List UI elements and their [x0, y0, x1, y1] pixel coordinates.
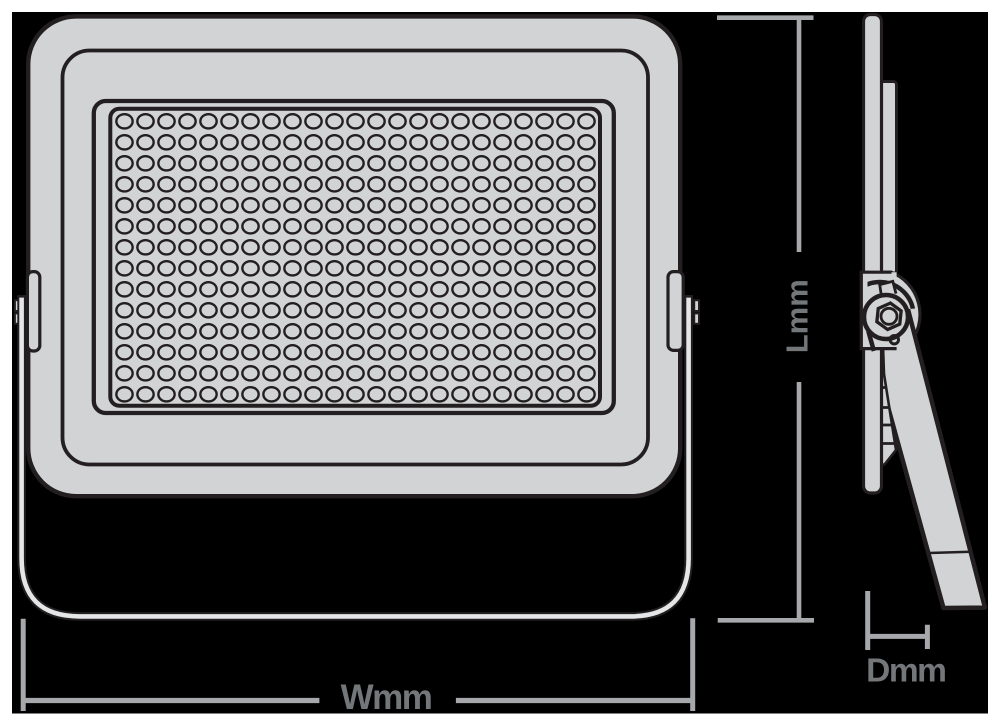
svg-text:Dmm: Dmm [866, 652, 945, 689]
svg-text:Lmm: Lmm [779, 279, 814, 353]
svg-text:Wmm: Wmm [341, 678, 432, 717]
